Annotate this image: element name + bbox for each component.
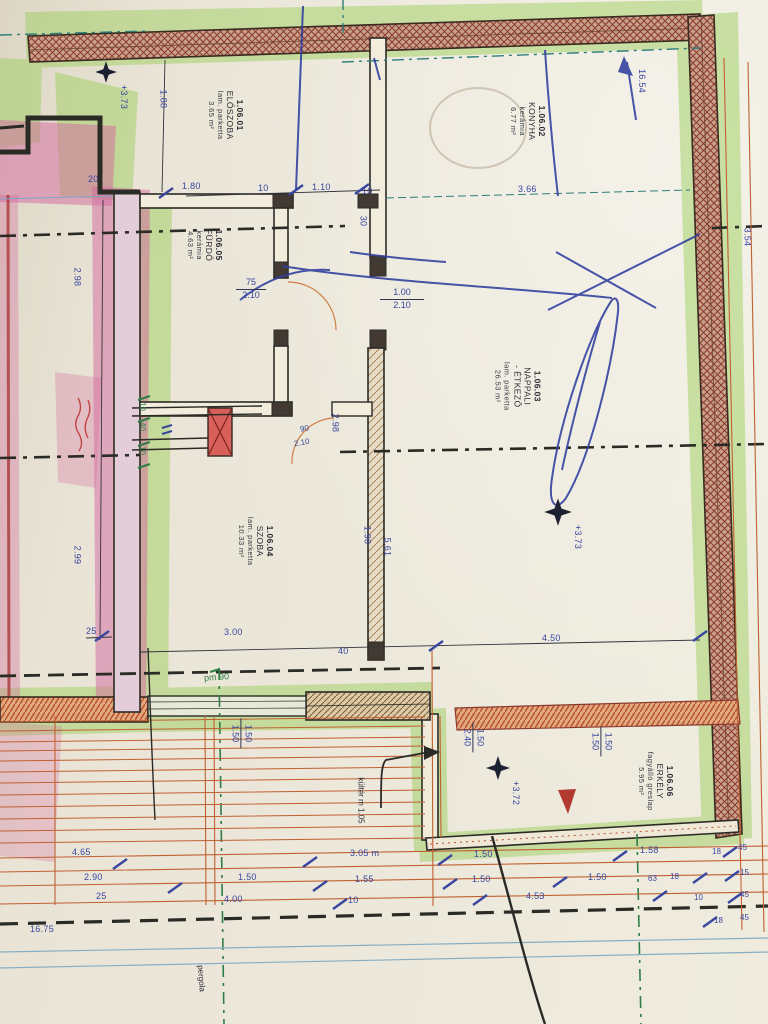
elevation-entry: +3.73 xyxy=(119,85,129,109)
room-label-erkely: 1.06.06 ERKÉLY fagyálló greslap 5.95 m² xyxy=(637,733,675,829)
elevation-living: +3.73 xyxy=(573,525,583,549)
dim-r2-155: 1.55 xyxy=(355,874,374,884)
dim-mid-190: 1.90 xyxy=(362,526,372,545)
dim-mid-40: 40 xyxy=(338,646,349,656)
note-pergola: pergola xyxy=(196,965,207,992)
dim-r4-1675: 16.75 xyxy=(30,924,54,934)
dim-r2-150c: 1.50 xyxy=(588,872,607,882)
dim-r1-305: 3.05 m xyxy=(350,848,379,858)
window-size-left: 1.50 1.50 xyxy=(230,718,253,748)
dim-mid-30: 30 xyxy=(358,216,368,227)
dim-top-110: 1.10 xyxy=(312,182,331,192)
dim-r1-465: 4.65 xyxy=(72,847,91,857)
dim-r1-158: 1.58 xyxy=(640,845,659,855)
dim-duct-10b: 10 xyxy=(138,446,147,455)
window-size-right: 1.50 1.50 xyxy=(590,726,613,756)
note-kulter: kültér m 1.05 xyxy=(357,777,366,823)
dim-top-10a: 10 xyxy=(258,183,269,193)
dim-r2-150b: 1.50 xyxy=(472,874,491,884)
dim-left-299: 2.99 xyxy=(72,546,82,565)
dim-r3-10: 10 xyxy=(348,895,359,905)
dim-r4-18: 18 xyxy=(714,916,723,925)
dim-r3-45: 45 xyxy=(740,890,749,899)
dim-mid-298: 2.98 xyxy=(330,414,340,433)
room-label-furdo: 1.06.05 FÜRDŐ kerámia 4.63 m² xyxy=(186,197,224,293)
dim-mid-561: 5.61 xyxy=(382,538,392,557)
door-size-balcony: 1.50 2.40 xyxy=(462,722,485,752)
dim-r2-150a: 1.50 xyxy=(238,872,257,882)
room-label-eloszoba: 1.06.01 ELŐSZOBA lam. parketta 3.65 m² xyxy=(207,67,245,163)
dim-r3-400: 4.00 xyxy=(224,894,243,904)
dim-right-354: 3.54 xyxy=(742,228,752,247)
dim-r2-290: 2.90 xyxy=(84,872,103,882)
plan-linework xyxy=(0,0,768,1024)
dim-r3-453: 4.53 xyxy=(526,891,545,901)
dim-lines-black xyxy=(86,60,700,652)
dim-top-20: 20 xyxy=(88,174,99,184)
dim-top-180: 1.80 xyxy=(182,181,201,191)
dim-1654: 16.54 xyxy=(637,69,647,93)
dim-r4-45: 45 xyxy=(740,913,749,922)
dim-188: 1.88 xyxy=(158,90,168,109)
door-arcs xyxy=(288,282,336,464)
room-label-nappali: 1.06.03 NAPPALI - ÉTKEZŐ lam. parketta 2… xyxy=(494,338,543,434)
dim-duct-40: 40 xyxy=(138,422,147,431)
dim-mid-300: 3.00 xyxy=(224,627,243,637)
dim-left-298: 2.98 xyxy=(72,268,82,287)
floorplan-photo: 1.06.01 ELŐSZOBA lam. parketta 3.65 m² 1… xyxy=(0,0,768,1024)
dim-mid-450: 4.50 xyxy=(542,633,561,643)
dim-r3-25: 25 xyxy=(96,891,107,901)
windows xyxy=(148,692,430,720)
room-label-konyha: 1.06.02 KONYHA kerámia 6.77 m² xyxy=(509,73,547,169)
dim-r2-63: 63 xyxy=(648,874,657,883)
dim-konyha-width: 3.66 xyxy=(518,184,537,194)
door-size-bath: 75 2.10 xyxy=(236,278,266,301)
dim-r1-18: 18 xyxy=(712,847,721,856)
door-size-living: 1.00 2.10 xyxy=(380,288,424,311)
dim-r2-18: 18 xyxy=(670,872,679,881)
dim-r2-15: 15 xyxy=(740,868,749,877)
door-size-room-w: 90 xyxy=(299,423,309,433)
dim-top-10b: 10 xyxy=(362,186,373,196)
dim-r1-45: 45 xyxy=(738,843,747,852)
dim-duct-10a: 10 xyxy=(138,402,147,411)
note-pm90: pm 90 xyxy=(204,671,230,683)
elevation-balcony: +3.72 xyxy=(511,781,521,805)
dim-r3-10b: 10 xyxy=(694,893,703,902)
dim-r1-150: 1.50 xyxy=(474,849,493,859)
room-label-szoba: 1.06.04 SZOBA lam. parketta 10.33 m² xyxy=(237,493,275,589)
dim-left-25: 25 xyxy=(86,626,97,636)
